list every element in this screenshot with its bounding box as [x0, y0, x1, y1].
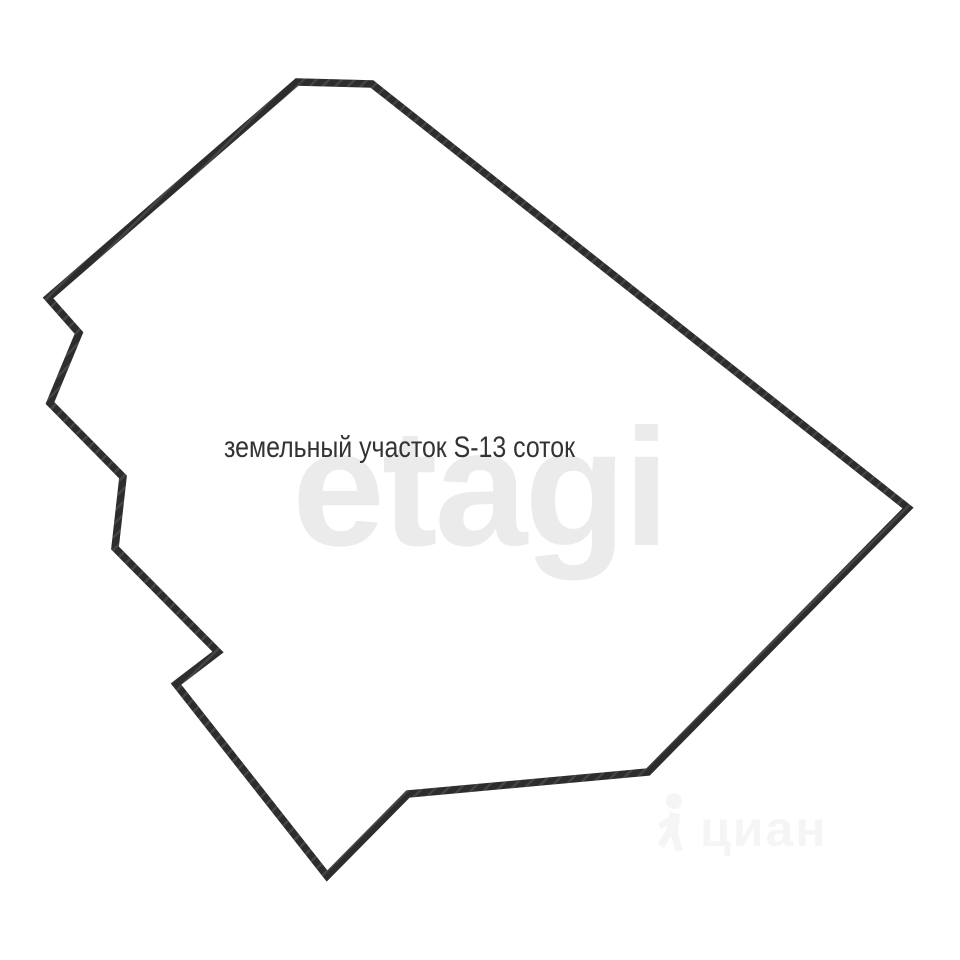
- plot-outline: [48, 82, 908, 876]
- land-plot-svg: [0, 0, 960, 960]
- plot-outline-hatch-texture: [48, 82, 908, 876]
- plot-label: земельный участок S-13 соток: [224, 433, 575, 463]
- land-plot-diagram: etagi циан земельный участок S-13 соток: [0, 0, 960, 960]
